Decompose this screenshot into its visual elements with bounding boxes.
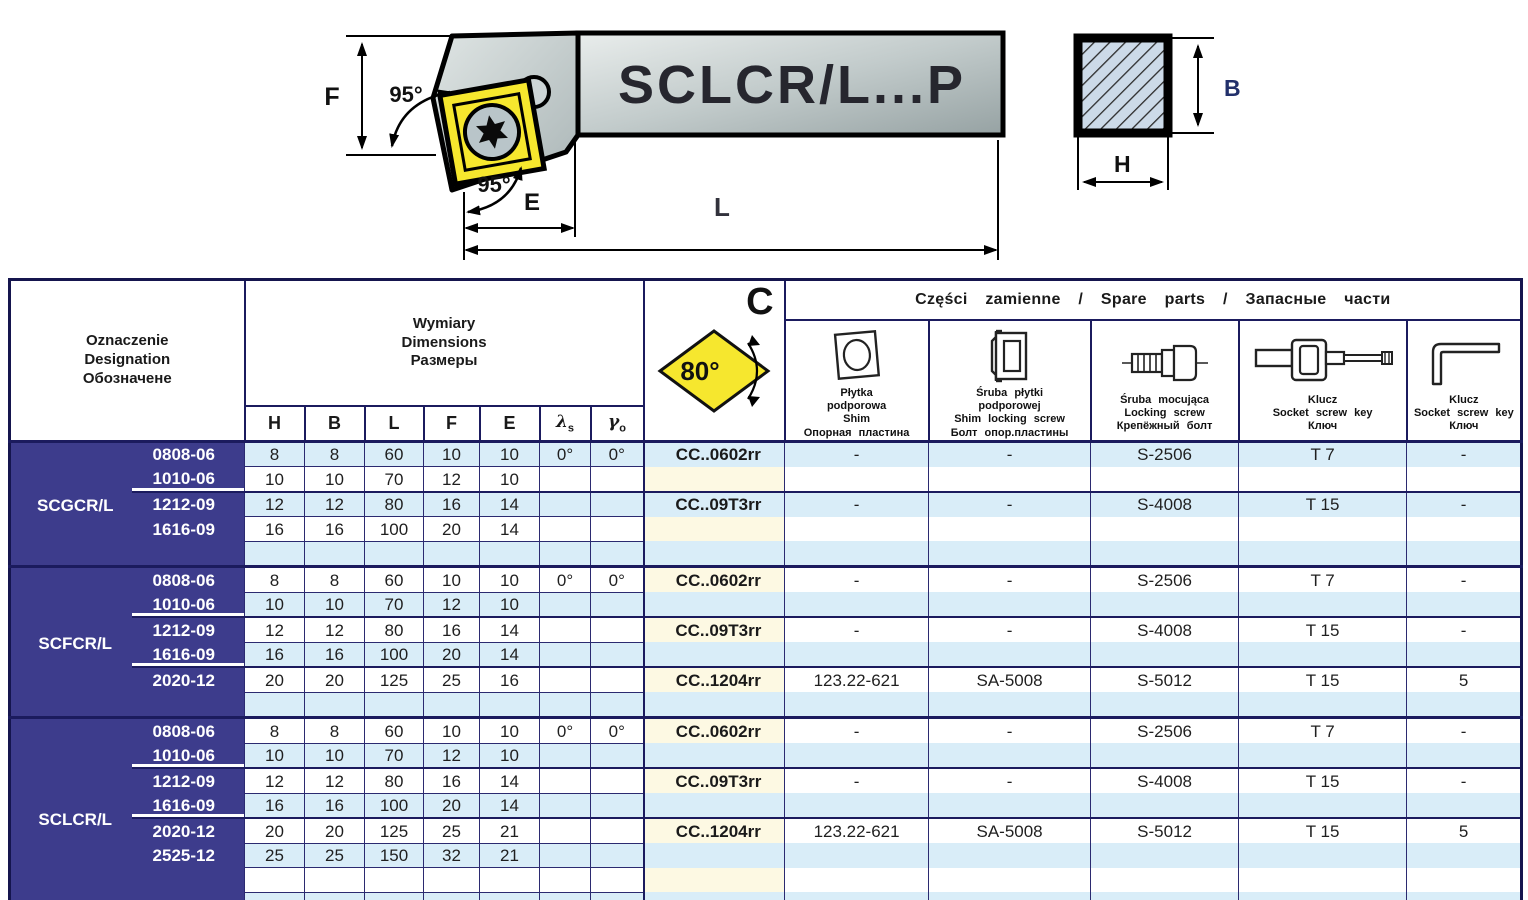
designation-header-ru: Обозначене <box>11 370 244 389</box>
cell-B: 10 <box>305 743 365 768</box>
col-header-L: L <box>365 406 424 442</box>
cell-E <box>480 892 540 900</box>
hex-key-cell: - <box>1407 718 1522 744</box>
shim-screw-label-line: Śruba płytki <box>930 387 1090 400</box>
locking-screw-cell <box>1091 692 1239 718</box>
insert-code-cell <box>644 868 785 893</box>
socket-key-cell <box>1239 743 1407 768</box>
table-row: 1212-091212801614CC..09T3rr--S-4008T 15- <box>10 768 1522 793</box>
insert-code-cell <box>644 743 785 768</box>
shim-cell: 123.22-621 <box>785 667 929 692</box>
socket-key-cell <box>1239 793 1407 818</box>
socket-key-cell: T 15 <box>1239 768 1407 793</box>
table-row: 1010-061010701210 <box>10 467 1522 492</box>
cell-H: 10 <box>245 743 305 768</box>
locking-screw-cell <box>1091 592 1239 617</box>
hex-key-cell <box>1407 843 1522 868</box>
cell-L: 125 <box>365 818 424 843</box>
cell-F <box>424 692 480 718</box>
cell-lambda-s <box>540 868 591 893</box>
hex-key-icon <box>1419 334 1509 392</box>
locking-screw-cell: S-4008 <box>1091 768 1239 793</box>
cell-lambda-s <box>540 768 591 793</box>
shim-label-line: podporowa <box>786 400 928 413</box>
locking-screw-cell: S-5012 <box>1091 818 1239 843</box>
cell-H: 12 <box>245 492 305 517</box>
cell-H <box>245 692 305 718</box>
size-cell: 2020-12 <box>132 818 245 843</box>
cell-L: 125 <box>365 667 424 692</box>
dim-F-label: F <box>324 83 339 111</box>
table-row: 1212-091212801614CC..09T3rr--S-4008T 15- <box>10 617 1522 642</box>
size-cell: 2525-12 <box>132 843 245 868</box>
insert-code-cell: CC..1204rr <box>644 818 785 843</box>
hex-key-cell: - <box>1407 768 1522 793</box>
shim-screw-cell: - <box>929 567 1091 593</box>
cell-E: 14 <box>480 642 540 667</box>
cell-L: 70 <box>365 467 424 492</box>
socket-key-label-line: Ключ <box>1240 420 1406 433</box>
cell-L: 60 <box>365 441 424 467</box>
designation-cell: SCLCR/L <box>10 718 132 900</box>
cell-L: 100 <box>365 642 424 667</box>
tool-holder-drawing: SCLCR/L...P F 95° 95° E <box>0 0 1528 272</box>
shim-cell <box>785 467 929 492</box>
insert-code-cell <box>644 892 785 900</box>
cell-gamma-o <box>591 492 644 517</box>
locking-screw-cell: S-5012 <box>1091 667 1239 692</box>
hex-key-cell: 5 <box>1407 818 1522 843</box>
table-row: SCGCR/L0808-06886010100°0°CC..0602rr--S-… <box>10 441 1522 467</box>
cell-lambda-s <box>540 818 591 843</box>
socket-key-cell <box>1239 868 1407 893</box>
socket-key-cell: T 15 <box>1239 818 1407 843</box>
col-header-lambda-s: λs <box>540 406 591 442</box>
dim-E-label: E <box>524 189 540 216</box>
cell-E: 14 <box>480 617 540 642</box>
cell-F: 20 <box>424 517 480 542</box>
dimensions-header: Wymiary Dimensions Размеры <box>245 280 644 406</box>
cell-F: 32 <box>424 843 480 868</box>
shim-screw-label-line: Болт опор.пластины <box>930 427 1090 440</box>
size-cell <box>132 541 245 567</box>
cell-lambda-s <box>540 692 591 718</box>
designation-cell: SCGCR/L <box>10 441 132 567</box>
cell-lambda-s <box>540 617 591 642</box>
cell-B <box>305 541 365 567</box>
cell-H: 16 <box>245 793 305 818</box>
cell-F: 16 <box>424 492 480 517</box>
size-cell: 1616-09 <box>132 793 245 818</box>
table-row <box>10 868 1522 893</box>
socket-key-cell <box>1239 592 1407 617</box>
cell-F: 20 <box>424 642 480 667</box>
size-cell: 1212-09 <box>132 768 245 793</box>
table-row: 2020-1220201252521CC..1204rr123.22-621SA… <box>10 818 1522 843</box>
insert-code-cell <box>644 793 785 818</box>
cell-B: 16 <box>305 517 365 542</box>
cell-H: 12 <box>245 617 305 642</box>
insert-code-cell <box>644 541 785 567</box>
cell-L <box>365 541 424 567</box>
table-row <box>10 541 1522 567</box>
cell-E: 10 <box>480 718 540 744</box>
hex-key-label-line: Ключ <box>1408 420 1521 433</box>
table-row <box>10 692 1522 718</box>
shim-cell: - <box>785 718 929 744</box>
hex-key-cell <box>1407 517 1522 542</box>
cell-F: 12 <box>424 743 480 768</box>
table-row: 2525-1225251503221 <box>10 843 1522 868</box>
socket-key-cell <box>1239 642 1407 667</box>
cell-lambda-s <box>540 592 591 617</box>
spare-part-header-locking-screw: Śruba mocująca Locking screw Крепёжный б… <box>1091 320 1239 441</box>
cell-L: 100 <box>365 793 424 818</box>
cell-L: 80 <box>365 617 424 642</box>
dimensions-header-pl: Wymiary <box>246 315 643 334</box>
hex-key-cell <box>1407 892 1522 900</box>
locking-screw-cell <box>1091 868 1239 893</box>
cell-lambda-s <box>540 492 591 517</box>
cell-F: 12 <box>424 467 480 492</box>
cell-B: 20 <box>305 667 365 692</box>
shim-cell <box>785 541 929 567</box>
size-cell: 1010-06 <box>132 743 245 768</box>
cell-E <box>480 868 540 893</box>
insert-column-header: C 80° <box>644 280 785 442</box>
shim-cell: - <box>785 441 929 467</box>
shim-icon <box>825 327 889 385</box>
cell-L: 60 <box>365 567 424 593</box>
cell-H: 16 <box>245 517 305 542</box>
table-row: 2020-1220201252516CC..1204rr123.22-621SA… <box>10 667 1522 692</box>
shim-screw-cell: SA-5008 <box>929 667 1091 692</box>
locking-screw-cell <box>1091 892 1239 900</box>
size-cell: 0808-06 <box>132 718 245 744</box>
cell-lambda-s: 0° <box>540 718 591 744</box>
cell-F <box>424 868 480 893</box>
cell-E: 10 <box>480 441 540 467</box>
locking-screw-cell: S-2506 <box>1091 718 1239 744</box>
cell-B: 12 <box>305 617 365 642</box>
shim-screw-cell <box>929 517 1091 542</box>
shim-screw-cell <box>929 843 1091 868</box>
angle-bottom-label: 95° <box>477 172 510 197</box>
designation-header-en: Designation <box>11 351 244 370</box>
spare-part-header-shim-screw: Śruba płytki podporowej Shim locking scr… <box>929 320 1091 441</box>
dim-L-label: L <box>714 192 730 222</box>
locking-screw-cell <box>1091 517 1239 542</box>
cell-L: 80 <box>365 768 424 793</box>
cell-gamma-o: 0° <box>591 567 644 593</box>
cell-lambda-s <box>540 843 591 868</box>
socket-key-label-line: Socket screw key <box>1240 407 1406 420</box>
size-cell: 1616-09 <box>132 517 245 542</box>
socket-key-cell: T 7 <box>1239 441 1407 467</box>
size-cell <box>132 692 245 718</box>
cell-gamma-o <box>591 541 644 567</box>
cell-L <box>365 892 424 900</box>
cell-H: 8 <box>245 718 305 744</box>
hex-key-label-line: Socket screw key <box>1408 407 1521 420</box>
dim-B-label: B <box>1224 75 1241 101</box>
shim-cell: - <box>785 768 929 793</box>
locking-screw-label-line: Śruba mocująca <box>1092 394 1238 407</box>
spare-parts-header: Części zamienne / Spare parts / Запасные… <box>785 280 1522 321</box>
cell-E: 14 <box>480 793 540 818</box>
socket-key-cell <box>1239 843 1407 868</box>
socket-key-cell: T 7 <box>1239 567 1407 593</box>
table-row: 1616-0916161002014 <box>10 517 1522 542</box>
table-row: 1010-061010701210 <box>10 592 1522 617</box>
col-header-H: H <box>245 406 305 442</box>
insert-code-cell: CC..09T3rr <box>644 768 785 793</box>
cell-E: 21 <box>480 818 540 843</box>
angle-top-label: 95° <box>389 82 422 107</box>
cell-L: 150 <box>365 843 424 868</box>
locking-screw-cell <box>1091 843 1239 868</box>
shim-locking-screw-icon <box>978 327 1042 385</box>
cell-F: 16 <box>424 768 480 793</box>
shim-screw-cell <box>929 743 1091 768</box>
hex-key-cell <box>1407 743 1522 768</box>
shim-screw-cell <box>929 541 1091 567</box>
cell-H: 16 <box>245 642 305 667</box>
shim-cell: - <box>785 567 929 593</box>
cell-gamma-o <box>591 592 644 617</box>
cell-E: 16 <box>480 667 540 692</box>
cell-E: 14 <box>480 517 540 542</box>
cell-H <box>245 868 305 893</box>
table-row: 1616-0916161002014 <box>10 793 1522 818</box>
size-cell <box>132 868 245 893</box>
cell-H <box>245 892 305 900</box>
shim-label-line: Shim <box>786 413 928 426</box>
hex-key-label-line: Klucz <box>1408 394 1521 407</box>
shim-cell: 123.22-621 <box>785 818 929 843</box>
dimensions-header-ru: Размеры <box>246 352 643 371</box>
cell-E <box>480 692 540 718</box>
shim-screw-cell <box>929 692 1091 718</box>
locking-screw-icon <box>1120 334 1210 392</box>
shim-label-line: Опорная пластина <box>786 427 928 440</box>
cell-gamma-o <box>591 768 644 793</box>
cell-B: 8 <box>305 567 365 593</box>
shim-screw-cell <box>929 892 1091 900</box>
cell-gamma-o <box>591 517 644 542</box>
shim-screw-cell <box>929 467 1091 492</box>
shim-screw-cell: - <box>929 718 1091 744</box>
cell-lambda-s <box>540 467 591 492</box>
shim-screw-cell: SA-5008 <box>929 818 1091 843</box>
insert-code-cell: CC..0602rr <box>644 567 785 593</box>
shim-cell: - <box>785 492 929 517</box>
cell-E: 10 <box>480 592 540 617</box>
cell-F: 10 <box>424 441 480 467</box>
cell-gamma-o <box>591 743 644 768</box>
cell-F: 10 <box>424 718 480 744</box>
cell-H: 10 <box>245 467 305 492</box>
hex-key-cell <box>1407 642 1522 667</box>
cell-F: 10 <box>424 567 480 593</box>
hex-key-cell: 5 <box>1407 667 1522 692</box>
cell-L: 80 <box>365 492 424 517</box>
cell-L <box>365 868 424 893</box>
shim-screw-label-line: podporowej <box>930 400 1090 413</box>
hex-key-cell <box>1407 592 1522 617</box>
cell-E: 10 <box>480 467 540 492</box>
cell-lambda-s <box>540 642 591 667</box>
hex-key-cell <box>1407 467 1522 492</box>
hex-key-cell: - <box>1407 617 1522 642</box>
insert-code-cell <box>644 692 785 718</box>
cell-H: 20 <box>245 818 305 843</box>
cell-B <box>305 868 365 893</box>
cell-lambda-s <box>540 793 591 818</box>
cell-H: 25 <box>245 843 305 868</box>
insert-angle-label: 80° <box>680 356 719 386</box>
socket-key-cell: T 15 <box>1239 492 1407 517</box>
dimensions-table: Oznaczenie Designation Обозначене Wymiar… <box>8 278 1523 900</box>
cell-lambda-s <box>540 743 591 768</box>
hex-key-cell: - <box>1407 492 1522 517</box>
insert-code-cell <box>644 642 785 667</box>
size-cell: 1616-09 <box>132 642 245 667</box>
shim-screw-cell: - <box>929 492 1091 517</box>
cell-B: 16 <box>305 793 365 818</box>
size-cell: 1010-06 <box>132 592 245 617</box>
insert-code-cell: CC..09T3rr <box>644 617 785 642</box>
locking-screw-cell: S-4008 <box>1091 492 1239 517</box>
locking-screw-label-line: Крепёжный болт <box>1092 420 1238 433</box>
cell-F <box>424 541 480 567</box>
cell-B: 8 <box>305 441 365 467</box>
cell-L <box>365 692 424 718</box>
cutting-insert <box>440 80 544 184</box>
cell-gamma-o <box>591 843 644 868</box>
socket-key-label-line: Klucz <box>1240 394 1406 407</box>
socket-key-cell <box>1239 467 1407 492</box>
insert-code-cell: CC..09T3rr <box>644 492 785 517</box>
shim-cell: - <box>785 617 929 642</box>
cell-lambda-s: 0° <box>540 441 591 467</box>
table-row: SCLCR/L0808-06886010100°0°CC..0602rr--S-… <box>10 718 1522 744</box>
size-cell <box>132 892 245 900</box>
insert-code-cell: CC..0602rr <box>644 718 785 744</box>
cell-B: 12 <box>305 492 365 517</box>
cell-E: 10 <box>480 743 540 768</box>
cell-gamma-o <box>591 818 644 843</box>
table-row <box>10 892 1522 900</box>
socket-key-cell: T 15 <box>1239 667 1407 692</box>
shim-screw-cell: - <box>929 441 1091 467</box>
locking-screw-cell <box>1091 743 1239 768</box>
spare-part-header-shim: Płytka podporowa Shim Опорная пластина <box>785 320 929 441</box>
cell-gamma-o <box>591 892 644 900</box>
spare-part-header-socket-key: Klucz Socket screw key Ключ <box>1239 320 1407 441</box>
cell-L: 70 <box>365 743 424 768</box>
size-cell: 1212-09 <box>132 492 245 517</box>
shim-cell <box>785 843 929 868</box>
cell-H: 8 <box>245 441 305 467</box>
table-row: SCFCR/L0808-06886010100°0°CC..0602rr--S-… <box>10 567 1522 593</box>
cell-H: 8 <box>245 567 305 593</box>
cell-B <box>305 692 365 718</box>
socket-key-cell: T 7 <box>1239 718 1407 744</box>
tool-head <box>433 33 578 190</box>
socket-key-cell <box>1239 892 1407 900</box>
shim-screw-cell: - <box>929 617 1091 642</box>
designation-header-pl: Oznaczenie <box>11 332 244 351</box>
shim-cell <box>785 793 929 818</box>
size-cell: 1212-09 <box>132 617 245 642</box>
table-row: 1616-0916161002014 <box>10 642 1522 667</box>
cell-lambda-s <box>540 517 591 542</box>
hex-key-cell: - <box>1407 567 1522 593</box>
col-header-gamma-o: γo <box>591 406 644 442</box>
cell-B: 16 <box>305 642 365 667</box>
cell-gamma-o <box>591 692 644 718</box>
shim-screw-cell <box>929 642 1091 667</box>
locking-screw-cell: S-2506 <box>1091 441 1239 467</box>
cell-B <box>305 892 365 900</box>
dimensions-header-en: Dimensions <box>246 334 643 353</box>
insert-code-cell: CC..1204rr <box>644 667 785 692</box>
locking-screw-cell: S-2506 <box>1091 567 1239 593</box>
socket-key-cell <box>1239 541 1407 567</box>
locking-screw-cell: S-4008 <box>1091 617 1239 642</box>
cell-B: 10 <box>305 592 365 617</box>
cell-gamma-o <box>591 642 644 667</box>
cell-gamma-o <box>591 467 644 492</box>
socket-screw-key-icon <box>1248 334 1398 392</box>
insert-code-cell <box>644 467 785 492</box>
insert-80deg-diamond-icon: 80° <box>648 315 780 427</box>
cell-lambda-s <box>540 667 591 692</box>
socket-key-cell <box>1239 517 1407 542</box>
col-header-F: F <box>424 406 480 442</box>
cell-H <box>245 541 305 567</box>
cell-L: 100 <box>365 517 424 542</box>
locking-screw-cell <box>1091 541 1239 567</box>
designation-cell: SCFCR/L <box>10 567 132 718</box>
size-cell: 1010-06 <box>132 467 245 492</box>
shim-cell <box>785 692 929 718</box>
cell-gamma-o: 0° <box>591 718 644 744</box>
locking-screw-cell <box>1091 642 1239 667</box>
shank-cross-section: B H <box>1078 38 1241 190</box>
cell-gamma-o: 0° <box>591 441 644 467</box>
cell-F: 25 <box>424 667 480 692</box>
cell-H: 12 <box>245 768 305 793</box>
cell-F: 12 <box>424 592 480 617</box>
cell-H: 20 <box>245 667 305 692</box>
insert-code-cell <box>644 843 785 868</box>
dim-H-label: H <box>1114 151 1131 177</box>
cell-B: 20 <box>305 818 365 843</box>
shim-screw-cell <box>929 793 1091 818</box>
cell-E: 21 <box>480 843 540 868</box>
socket-key-cell <box>1239 692 1407 718</box>
size-cell: 0808-06 <box>132 567 245 593</box>
shim-screw-cell <box>929 592 1091 617</box>
locking-screw-label-line: Locking screw <box>1092 407 1238 420</box>
locking-screw-cell <box>1091 793 1239 818</box>
shim-screw-label-line: Shim locking screw <box>930 413 1090 426</box>
hex-key-cell <box>1407 793 1522 818</box>
designation-header: Oznaczenie Designation Обозначене <box>10 280 245 442</box>
shim-screw-cell: - <box>929 768 1091 793</box>
